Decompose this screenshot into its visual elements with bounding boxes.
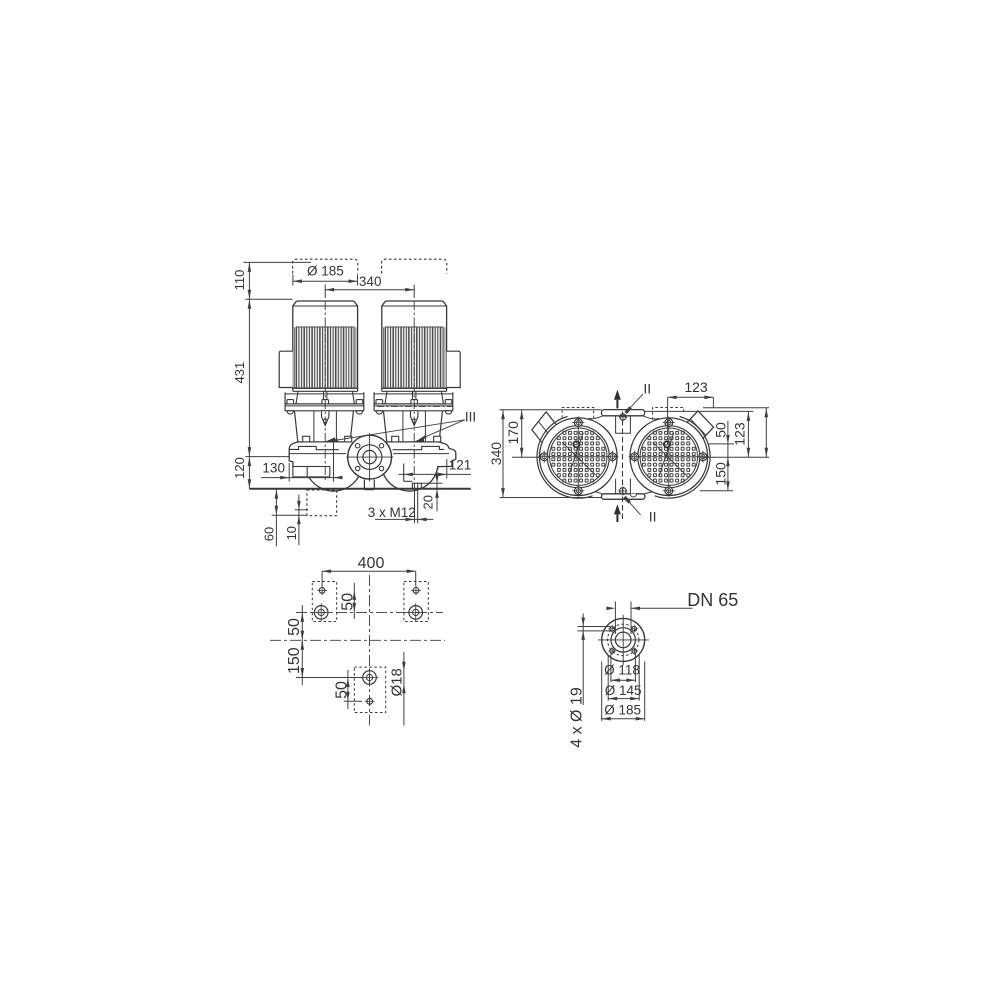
svg-text:340: 340	[488, 442, 504, 466]
svg-text:130: 130	[262, 460, 285, 475]
svg-text:431: 431	[232, 362, 247, 384]
svg-text:DN 65: DN 65	[687, 590, 738, 610]
svg-text:Ø 185: Ø 185	[604, 703, 641, 718]
svg-text:50: 50	[286, 618, 303, 636]
svg-text:Ø 185: Ø 185	[307, 263, 344, 278]
svg-text:50: 50	[334, 681, 351, 699]
svg-text:II: II	[643, 381, 651, 397]
svg-text:110: 110	[232, 270, 247, 291]
svg-text:120: 120	[232, 457, 247, 479]
svg-text:170: 170	[505, 421, 521, 445]
svg-text:121: 121	[449, 458, 472, 473]
svg-text:Ø 145: Ø 145	[605, 683, 642, 698]
svg-text:150: 150	[713, 462, 729, 486]
svg-text:50: 50	[713, 422, 729, 438]
svg-text:4 x Ø 19: 4 x Ø 19	[569, 687, 586, 748]
svg-text:III: III	[465, 410, 476, 425]
svg-text:10: 10	[284, 526, 299, 540]
svg-text:50: 50	[340, 593, 357, 611]
svg-text:340: 340	[359, 274, 382, 289]
svg-text:150: 150	[286, 647, 303, 674]
svg-text:123: 123	[732, 422, 748, 446]
svg-text:60: 60	[262, 527, 277, 541]
svg-text:20: 20	[421, 495, 436, 509]
svg-text:123: 123	[684, 379, 708, 395]
svg-text:400: 400	[358, 555, 385, 572]
svg-text:3 x M12: 3 x M12	[368, 505, 416, 520]
svg-text:II: II	[649, 509, 657, 525]
svg-text:Ø 118: Ø 118	[604, 663, 640, 678]
svg-text:Ø18: Ø18	[389, 668, 406, 696]
